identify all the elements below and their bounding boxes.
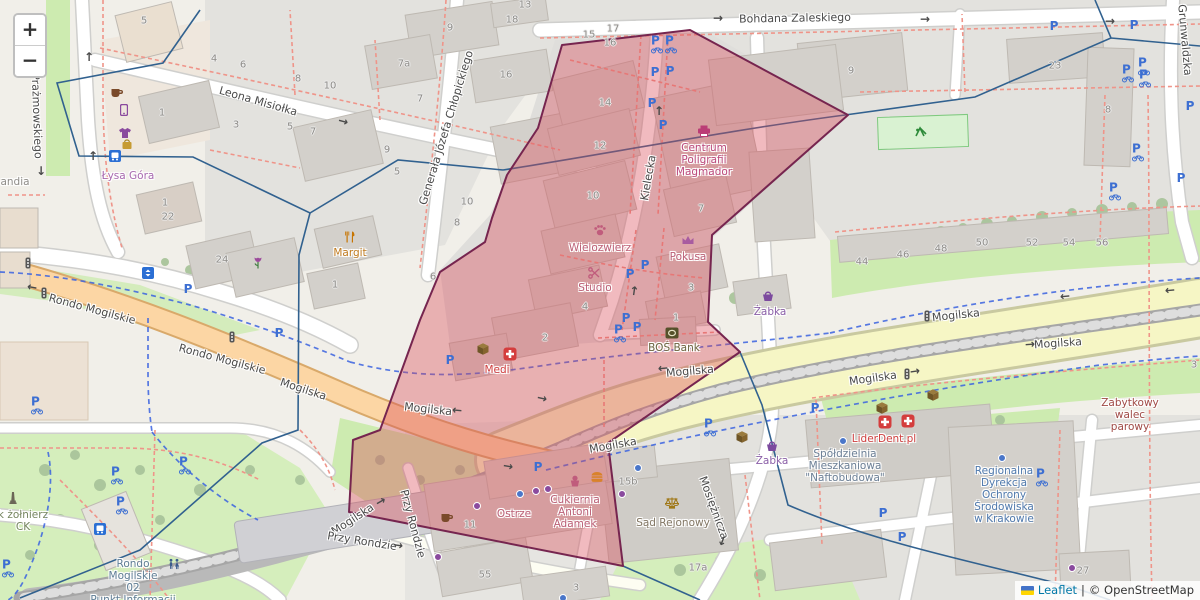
map-root: Bohdana ZaleskiegoLeona MisiołkaPrażmows… <box>0 0 1200 600</box>
leaflet-link[interactable]: Leaflet <box>1038 583 1077 597</box>
attribution-separator: | <box>1081 583 1085 597</box>
zoom-in-button[interactable]: + <box>15 15 45 45</box>
ukraine-flag-icon <box>1021 586 1034 595</box>
zoom-control: + − <box>13 13 47 78</box>
base-map[interactable] <box>0 0 1200 600</box>
zoom-out-button[interactable]: − <box>15 45 45 76</box>
openstreetmap-link[interactable]: © OpenStreetMap <box>1089 583 1194 597</box>
attribution-bar: Leaflet | © OpenStreetMap <box>1015 581 1200 600</box>
